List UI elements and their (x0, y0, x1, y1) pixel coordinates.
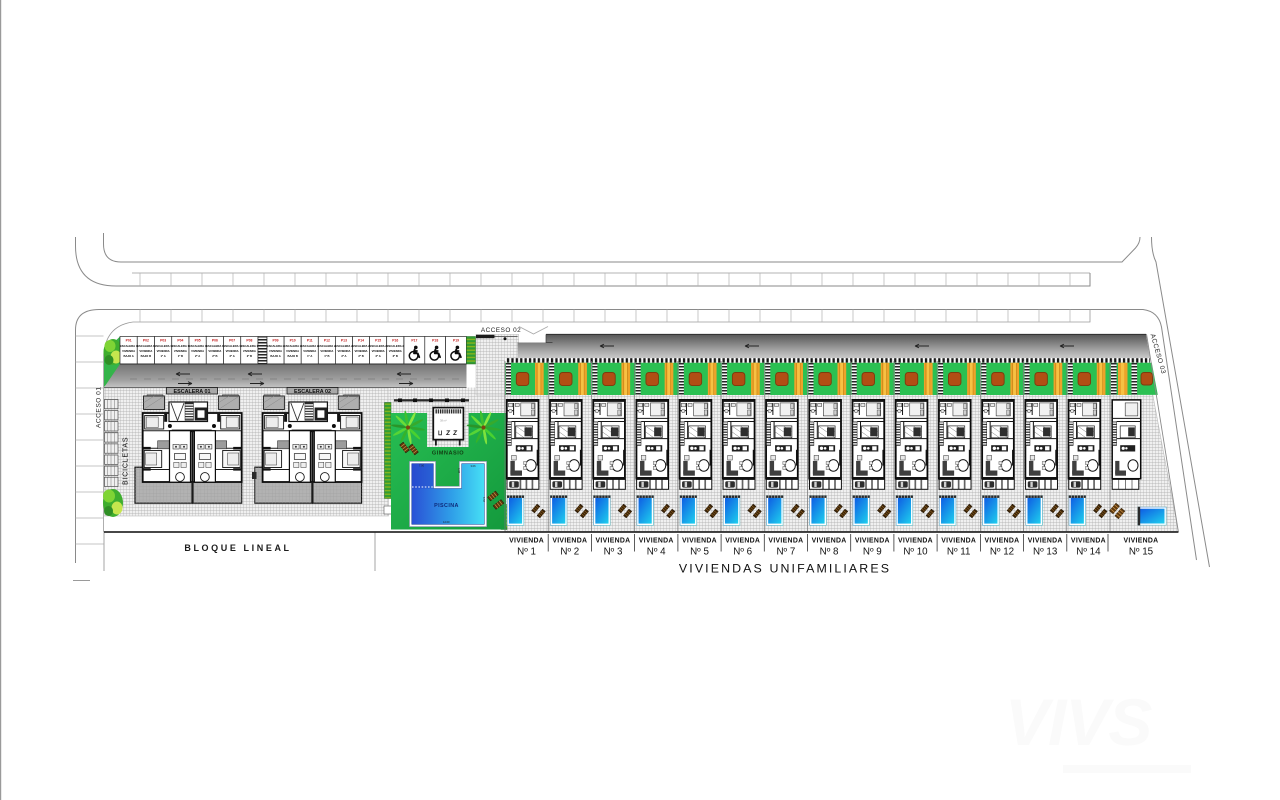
svg-text:VIVIENDA: VIVIENDA (320, 349, 333, 353)
svg-text:2º A: 2º A (195, 354, 200, 358)
svg-text:VIVIENDA: VIVIENDA (303, 349, 316, 353)
svg-text:1º A: 1º A (161, 354, 166, 358)
svg-text:ESCALERA 01: ESCALERA 01 (174, 389, 211, 395)
svg-text:VIVS: VIVS (1005, 685, 1152, 759)
svg-text:ACCESO 01: ACCESO 01 (96, 386, 103, 428)
svg-text:BAJO A: BAJO A (270, 354, 280, 358)
svg-text:7.00: 7.00 (419, 464, 425, 468)
svg-text:ESCALERA 2: ESCALERA 2 (369, 344, 387, 348)
svg-text:ESCALERA 1: ESCALERA 1 (223, 344, 241, 348)
svg-text:BAJO B: BAJO B (141, 354, 151, 358)
svg-text:2º B: 2º B (358, 354, 363, 358)
svg-text:VIVIENDA: VIVIENDA (191, 349, 204, 353)
svg-text:P03: P03 (160, 339, 166, 343)
svg-text:P12: P12 (324, 339, 330, 343)
svg-text:BLOQUE LINEAL: BLOQUE LINEAL (184, 543, 291, 553)
svg-text:VIVIENDA: VIVIENDA (157, 349, 170, 353)
svg-text:ESCALERA 1: ESCALERA 1 (189, 344, 207, 348)
svg-text:P05: P05 (195, 339, 201, 343)
svg-text:Nº 3: Nº 3 (604, 547, 623, 558)
svg-text:VIVIENDA: VIVIENDA (226, 349, 239, 353)
svg-text:3.06: 3.06 (471, 464, 477, 468)
svg-text:ESCALERA 2: ESCALERA 2 (387, 344, 405, 348)
svg-text:ESCALERA 1: ESCALERA 1 (120, 344, 138, 348)
svg-text:Nº 7: Nº 7 (776, 547, 795, 558)
svg-text:2º B: 2º B (212, 354, 217, 358)
svg-text:VIVIENDA: VIVIENDA (337, 349, 350, 353)
svg-text:VIVIENDA: VIVIENDA (208, 349, 221, 353)
svg-text:Nº 5: Nº 5 (690, 547, 709, 558)
svg-text:Nº 8: Nº 8 (820, 547, 839, 558)
svg-text:VIVIENDA: VIVIENDA (269, 349, 282, 353)
svg-text:VIVIENDA: VIVIENDA (941, 538, 976, 545)
svg-text:1º B: 1º B (178, 354, 183, 358)
svg-text:Nº 15: Nº 15 (1129, 547, 1154, 558)
svg-text:VIVIENDA: VIVIENDA (139, 349, 152, 353)
svg-text:P18: P18 (432, 339, 438, 343)
svg-text:P11: P11 (307, 339, 313, 343)
svg-text:VIVIENDA: VIVIENDA (174, 349, 187, 353)
svg-text:VIVIENDA: VIVIENDA (389, 349, 402, 353)
svg-text:P17: P17 (411, 339, 417, 343)
svg-text:Nº 9: Nº 9 (863, 547, 882, 558)
svg-text:ESCALERA 1: ESCALERA 1 (241, 344, 259, 348)
svg-text:P09: P09 (273, 339, 279, 343)
svg-text:1º A: 1º A (307, 354, 312, 358)
svg-text:VIVIENDA: VIVIENDA (1124, 538, 1159, 545)
svg-text:VIVIENDA: VIVIENDA (985, 538, 1020, 545)
svg-text:P02: P02 (143, 339, 149, 343)
svg-text:VIVIENDA: VIVIENDA (682, 538, 717, 545)
svg-text:Nº 4: Nº 4 (647, 547, 666, 558)
svg-text:VIVIENDA: VIVIENDA (355, 349, 368, 353)
svg-text:38 m²: 38 m² (440, 419, 447, 423)
svg-text:ESCALERA 1: ESCALERA 1 (172, 344, 190, 348)
svg-text:ESCALERA 1: ESCALERA 1 (154, 344, 172, 348)
svg-text:Nº 12: Nº 12 (990, 547, 1014, 558)
svg-text:P14: P14 (358, 339, 364, 343)
svg-text:2º A: 2º A (230, 354, 235, 358)
svg-text:P10: P10 (290, 339, 296, 343)
svg-text:ESCALERA 2: ESCALERA 2 (335, 344, 353, 348)
svg-text:P13: P13 (341, 339, 347, 343)
svg-text:VIVIENDA: VIVIENDA (243, 349, 256, 353)
svg-text:VIVIENDA: VIVIENDA (509, 538, 544, 545)
svg-text:Nº 13: Nº 13 (1033, 547, 1058, 558)
svg-text:BAJO A: BAJO A (123, 354, 133, 358)
svg-text:ESCALERA 2: ESCALERA 2 (284, 344, 302, 348)
svg-text:6.50: 6.50 (482, 497, 486, 503)
svg-text:Nº 11: Nº 11 (947, 547, 971, 558)
svg-text:P19: P19 (453, 339, 459, 343)
svg-text:ESCALERA 02: ESCALERA 02 (294, 389, 331, 395)
svg-text:ESCALERA 1: ESCALERA 1 (206, 344, 224, 348)
svg-text:VIVIENDA: VIVIENDA (855, 538, 890, 545)
svg-text:P15: P15 (375, 339, 381, 343)
svg-text:VIVIENDA: VIVIENDA (1028, 538, 1063, 545)
svg-text:BAJO B: BAJO B (287, 354, 297, 358)
svg-text:ESCALERA 2: ESCALERA 2 (301, 344, 319, 348)
svg-text:2º B: 2º B (247, 354, 252, 358)
svg-text:2º A: 2º A (376, 354, 381, 358)
svg-text:2º B: 2º B (393, 354, 398, 358)
svg-text:P16: P16 (392, 339, 398, 343)
svg-text:VIVIENDA: VIVIENDA (372, 349, 385, 353)
svg-text:VIVIENDA: VIVIENDA (552, 538, 587, 545)
svg-text:VIVIENDA: VIVIENDA (122, 349, 135, 353)
svg-text:P06: P06 (212, 339, 218, 343)
svg-text:1º B: 1º B (324, 354, 329, 358)
svg-text:P07: P07 (229, 339, 235, 343)
svg-text:VIVIENDA: VIVIENDA (898, 538, 933, 545)
svg-text:VIVIENDA: VIVIENDA (286, 349, 299, 353)
svg-text:ESCALERA 2: ESCALERA 2 (352, 344, 370, 348)
svg-text:GIMNASIO: GIMNASIO (432, 451, 464, 457)
svg-text:Nº 1: Nº 1 (517, 547, 536, 558)
svg-text:VIVIENDA: VIVIENDA (768, 538, 803, 545)
svg-text:VIVIENDA: VIVIENDA (725, 538, 760, 545)
svg-text:P04: P04 (177, 339, 183, 343)
svg-text:Nº 2: Nº 2 (560, 547, 579, 558)
svg-text:VIVIENDA: VIVIENDA (1071, 538, 1106, 545)
svg-text:BICICLETAS: BICICLETAS (123, 437, 130, 485)
svg-text:PISCINA: PISCINA (434, 503, 459, 509)
svg-text:VIVIENDAS UNIFAMILIARES: VIVIENDAS UNIFAMILIARES (679, 562, 891, 576)
svg-text:12.00: 12.00 (443, 520, 450, 524)
svg-text:ESCALERA 2: ESCALERA 2 (267, 344, 285, 348)
svg-text:ESCALERA 1: ESCALERA 1 (137, 344, 155, 348)
svg-text:VIVIENDA: VIVIENDA (596, 538, 631, 545)
svg-text:P08: P08 (246, 339, 252, 343)
svg-text:Nº 6: Nº 6 (733, 547, 752, 558)
svg-text:4.08: 4.08 (457, 468, 461, 474)
svg-text:Nº 10: Nº 10 (903, 547, 928, 558)
svg-text:ACCESO 02: ACCESO 02 (481, 327, 521, 334)
svg-text:Nº 14: Nº 14 (1076, 547, 1101, 558)
svg-text:VIVIENDA: VIVIENDA (639, 538, 674, 545)
svg-text:2º A: 2º A (341, 354, 346, 358)
svg-text:ESCALERA 2: ESCALERA 2 (318, 344, 336, 348)
svg-text:P01: P01 (126, 339, 132, 343)
svg-text:VIVIENDA: VIVIENDA (812, 538, 847, 545)
